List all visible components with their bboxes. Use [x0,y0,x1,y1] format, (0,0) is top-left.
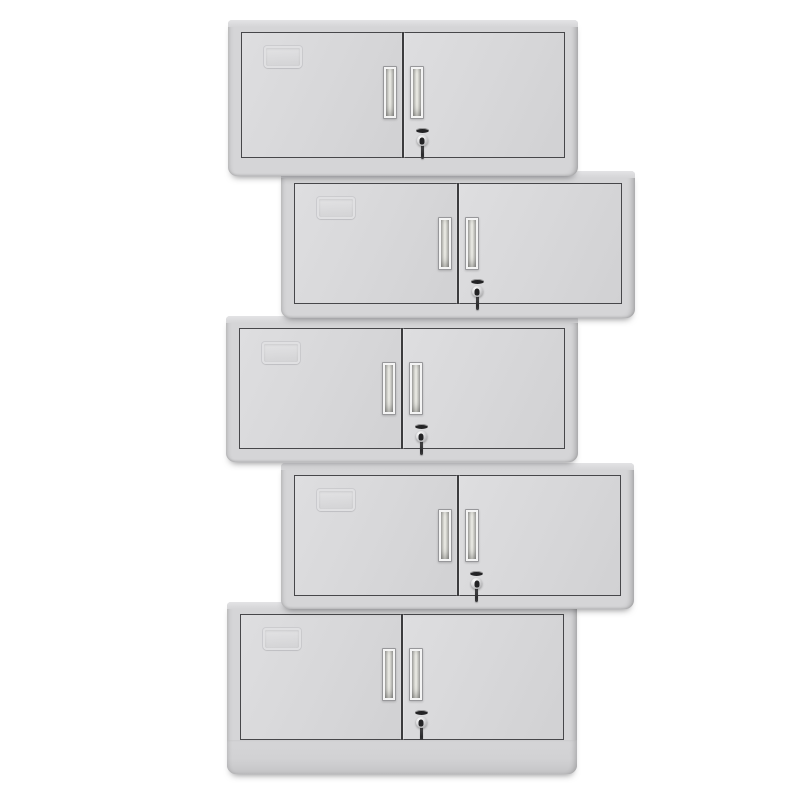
key-bow [415,424,428,429]
door-area [240,614,564,740]
right-door-handle-icon [410,66,424,119]
lock-cylinder [416,717,427,728]
cabinet-unit-1 [228,20,578,176]
handle-recess [468,220,476,267]
handle-recess [385,651,393,698]
key-bow [416,128,429,133]
cabinet-unit-4 [281,463,634,609]
label-card-holder [262,342,300,364]
left-door [239,328,402,449]
product-photo-scene [0,0,800,800]
handle-recess [386,69,394,116]
key-lock-icon [469,279,485,310]
right-door-handle-icon [409,648,423,701]
cabinet-unit-5 [227,602,577,774]
handle-recess [413,69,421,116]
keyhole [475,289,480,296]
left-door [241,32,403,158]
door-seam [402,32,404,158]
lock-cylinder [471,578,482,589]
left-door [294,183,458,304]
door-area [239,328,565,449]
lock-cylinder [416,431,427,442]
door-area [241,32,565,158]
handle-recess [441,512,449,559]
lock-cylinder [472,286,483,297]
door-area [294,475,621,596]
handle-recess [441,220,449,267]
key-shaft [476,296,479,310]
left-door [240,614,402,740]
label-card-holder [264,46,302,68]
key-shaft [475,588,478,602]
door-seam [401,614,403,740]
right-door-handle-icon [465,217,479,270]
cabinet-unit-2 [281,171,635,318]
left-door-handle-icon [438,509,452,562]
key-lock-icon [414,128,430,159]
key-bow [470,571,483,576]
cabinet-top-edge [228,20,578,27]
keyhole [420,138,425,145]
cabinet-unit-3 [226,316,578,462]
door-seam [401,328,403,449]
handle-recess [412,651,420,698]
left-door [294,475,458,596]
left-door-handle-icon [383,66,397,119]
plinth-base [227,740,577,774]
door-area [294,183,622,304]
key-lock-icon [413,424,429,455]
left-door-handle-icon [382,648,396,701]
lock-cylinder [417,135,428,146]
left-door-handle-icon [438,217,452,270]
door-seam [457,183,459,304]
right-door-handle-icon [409,362,423,415]
handle-recess [468,512,476,559]
key-shaft [421,145,424,159]
handle-recess [385,365,393,412]
door-seam [457,475,459,596]
key-bow [415,710,428,715]
handle-recess [412,365,420,412]
key-lock-icon [469,571,485,602]
cabinet-top-edge [281,463,634,470]
key-bow [471,279,484,284]
keyhole [474,581,479,588]
label-card-holder [263,628,301,650]
key-lock-icon [413,710,429,741]
keyhole [419,434,424,441]
label-card-holder [317,197,355,219]
key-shaft [420,727,423,741]
left-door-handle-icon [382,362,396,415]
right-door-handle-icon [465,509,479,562]
label-card-holder [317,489,355,511]
keyhole [419,720,424,727]
key-shaft [420,441,423,455]
